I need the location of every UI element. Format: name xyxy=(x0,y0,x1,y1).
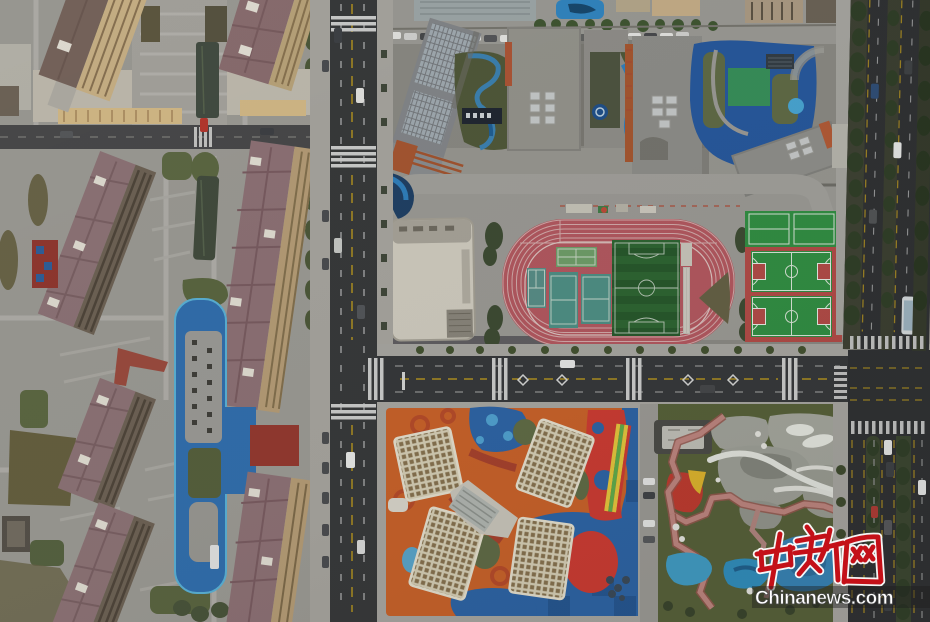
svg-text:Chinanews.com: Chinanews.com xyxy=(755,588,893,609)
